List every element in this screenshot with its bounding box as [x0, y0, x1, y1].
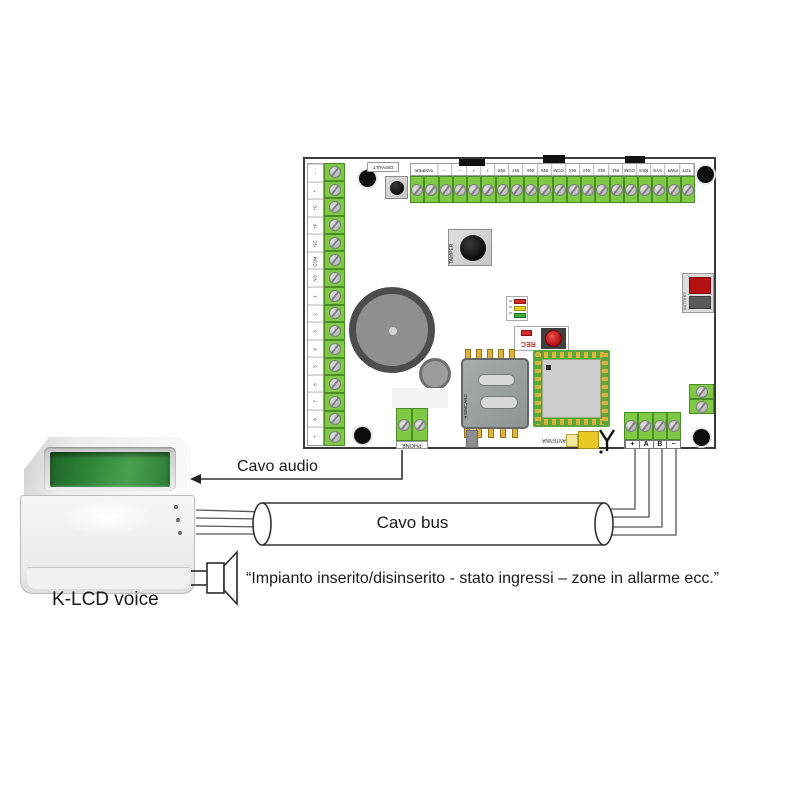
- antenna-connector: [578, 431, 599, 449]
- keypad-bottom-strip: [27, 567, 190, 589]
- keypad-led: [174, 505, 178, 509]
- antenna-label: ANTENNA: [539, 434, 568, 445]
- terminal-screw: [324, 393, 345, 411]
- bus-terminal-labels: +AB−: [624, 440, 681, 449]
- terminal-screw: [667, 412, 681, 440]
- top-terminal-labels: TAMPER−−++IN8IN7IN6IN5COMIN4IN3IN2IN1COM…: [410, 163, 695, 176]
- jumper: [459, 159, 485, 166]
- battery-connector: BATTERY: [682, 273, 714, 313]
- terminal-label: IN3: [580, 164, 594, 175]
- bus-wires-right: [604, 449, 676, 535]
- terminal-label: IN1: [609, 164, 623, 175]
- terminal-label: +: [308, 182, 323, 200]
- phone-terminal: [396, 408, 428, 441]
- terminal-screw: [324, 287, 345, 305]
- terminal-screw: [324, 305, 345, 323]
- mounting-hole: [359, 170, 376, 187]
- terminal-label: 5: [308, 357, 323, 375]
- bus-terminal-label: A: [639, 441, 653, 448]
- terminal-screw: [424, 176, 438, 203]
- terminal-screw: [553, 176, 567, 203]
- terminal-label: −: [438, 164, 452, 175]
- terminal-label: TAMPER: [411, 164, 438, 175]
- terminal-screw: [410, 176, 424, 203]
- terminal-screw: [324, 198, 345, 216]
- antenna-connector: [566, 434, 578, 447]
- buzzer: [349, 287, 435, 373]
- terminal-screw: [689, 384, 714, 399]
- speaker-icon: [191, 552, 237, 604]
- wiring-diagram: TAMPER−−++IN8IN7IN6IN5COMIN4IN3IN2IN1COM…: [0, 0, 800, 800]
- terminal-label: 2: [308, 305, 323, 323]
- terminal-screw: [496, 176, 510, 203]
- bus-wires-left: [196, 510, 266, 534]
- terminal-screw: [667, 176, 681, 203]
- default-button: [385, 176, 408, 199]
- terminal-screw: [610, 176, 624, 203]
- terminal-label: 8: [308, 410, 323, 428]
- keypad-led: [178, 531, 182, 535]
- terminal-label: NC: [308, 234, 323, 252]
- jumper: [625, 156, 645, 163]
- terminal-label: COM: [623, 164, 637, 175]
- status-led-block: [506, 296, 528, 321]
- terminal-screw: [638, 176, 652, 203]
- terminal-label: RES: [637, 164, 651, 175]
- rec-block: REC: [514, 326, 569, 351]
- lcd-screen: [50, 452, 170, 487]
- cavo-audio-label: Cavo audio: [237, 458, 318, 476]
- terminal-screw: [439, 176, 453, 203]
- tamper-button: TAMPER: [448, 229, 492, 266]
- keypad-led: [176, 518, 180, 522]
- terminal-label: +F: [308, 217, 323, 235]
- terminal-screw: [638, 412, 652, 440]
- terminal-screw: [324, 340, 345, 358]
- rec-button: [541, 328, 566, 349]
- terminal-label: IN7: [509, 164, 523, 175]
- terminal-screw: [524, 176, 538, 203]
- terminal-screw: [581, 176, 595, 203]
- jumper: [543, 155, 565, 163]
- aux-terminal: [689, 384, 714, 414]
- terminal-label: 4: [308, 340, 323, 358]
- terminal-label: 6: [308, 375, 323, 393]
- terminal-label: 7: [308, 392, 323, 410]
- terminal-screw: [396, 408, 412, 441]
- terminal-screw: [324, 411, 345, 429]
- terminal-label: +C: [308, 199, 323, 217]
- cavo-bus-label: Cavo bus: [290, 513, 535, 533]
- terminal-screw: [324, 216, 345, 234]
- terminal-screw: [324, 234, 345, 252]
- red-led: [514, 299, 526, 304]
- terminal-screw: [595, 176, 609, 203]
- terminal-label: NO: [308, 269, 323, 287]
- left-terminal-column: [324, 163, 345, 446]
- bus-terminal-label: −: [666, 441, 680, 448]
- terminal-screw: [653, 412, 667, 440]
- terminal-screw: [324, 375, 345, 393]
- terminal-screw: [324, 181, 345, 199]
- terminal-screw: [412, 408, 428, 441]
- green-led: [514, 313, 526, 318]
- mounting-hole: [693, 429, 710, 446]
- audio-arrowhead: [190, 474, 201, 484]
- terminal-label: IN4: [566, 164, 580, 175]
- bus-terminal-block: [624, 412, 681, 440]
- terminal-screw: [324, 322, 345, 340]
- terminal-label: −: [308, 164, 323, 182]
- phone-label: PHONE: [396, 441, 428, 449]
- bus-terminal-label: +: [625, 441, 639, 448]
- speech-quote: “Impianto inserito/disinserito - stato i…: [246, 570, 719, 588]
- terminal-label: 3: [308, 322, 323, 340]
- label-patch: [392, 388, 448, 408]
- terminal-label: SYS: [651, 164, 665, 175]
- terminal-label: TOT: [680, 164, 694, 175]
- terminal-screw: [567, 176, 581, 203]
- terminal-screw: [624, 176, 638, 203]
- mounting-hole: [697, 166, 714, 183]
- rec-label: REC: [521, 340, 536, 347]
- terminal-label: COM: [552, 164, 566, 175]
- terminal-label: PWR: [666, 164, 680, 175]
- terminal-screw: [467, 176, 481, 203]
- terminal-screw: [624, 412, 638, 440]
- capacitor: [419, 358, 451, 390]
- terminal-screw: [324, 251, 345, 269]
- bus-terminal-label: B: [653, 441, 667, 448]
- gsm-module: [533, 350, 610, 427]
- terminal-screw: [324, 269, 345, 287]
- terminal-screw: [324, 358, 345, 376]
- terminal-screw: [481, 176, 495, 203]
- terminal-screw: [538, 176, 552, 203]
- terminal-screw: [324, 428, 345, 446]
- yellow-led: [514, 306, 526, 311]
- terminal-screw: [453, 176, 467, 203]
- terminal-label: IN2: [595, 164, 609, 175]
- terminal-screw: [510, 176, 524, 203]
- keypad-name-label: K-LCD voice: [52, 589, 159, 611]
- terminal-label: +: [308, 427, 323, 445]
- terminal-screw: [324, 163, 345, 181]
- left-terminal-labels: −++C+FNCCOMNO12345678+: [307, 163, 324, 446]
- mounting-hole: [354, 427, 371, 444]
- keypad-body: [20, 495, 195, 594]
- terminal-label: IN6: [524, 164, 538, 175]
- terminal-label: IN5: [538, 164, 552, 175]
- terminal-label: COM: [308, 252, 323, 270]
- terminal-screw: [652, 176, 666, 203]
- terminal-label: IN8: [495, 164, 509, 175]
- sim-label: ▲SIMCARD: [464, 368, 469, 420]
- default-label: DEFAULT: [367, 162, 399, 172]
- rec-led: [521, 330, 532, 336]
- terminal-screw: [689, 399, 714, 414]
- terminal-screw: [681, 176, 695, 203]
- led-labels: [509, 300, 512, 317]
- top-terminal-row: [410, 176, 695, 203]
- terminal-label: 1: [308, 287, 323, 305]
